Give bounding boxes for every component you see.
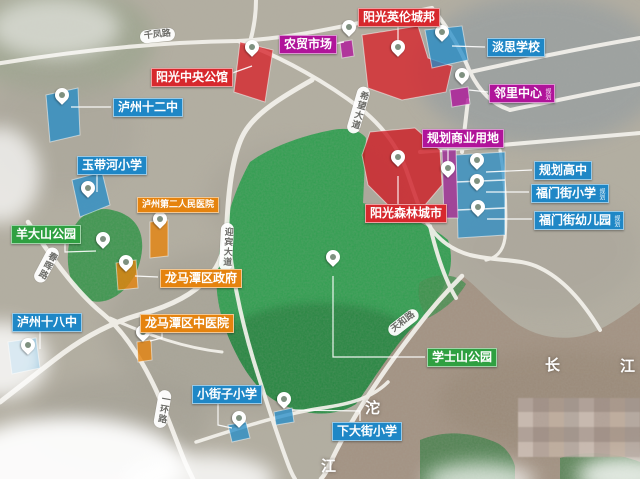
- label-text: 龙马潭区政府: [165, 271, 237, 286]
- road-label-tianhe-road: 天和路: [386, 307, 422, 339]
- pin-luzhou-second-peoples-hospital[interactable]: [153, 212, 167, 226]
- label-sunshine-england-estate[interactable]: 阳光英伦城邦: [358, 8, 440, 27]
- label-luzhou-second-peoples-hospital[interactable]: 泸州第二人民医院: [137, 197, 219, 213]
- pin-dansi-school[interactable]: [435, 25, 449, 39]
- label-fumenjie-primary-school[interactable]: 福门街小学规划: [531, 184, 609, 203]
- label-text: 玉带河小学: [82, 158, 142, 173]
- label-text: 下大街小学: [337, 424, 397, 439]
- label-yudaihe-primary-school[interactable]: 玉带河小学: [77, 156, 147, 175]
- label-planned-commercial-land[interactable]: 规划商业用地: [422, 129, 504, 148]
- label-planned-high-school[interactable]: 规划高中: [534, 161, 592, 180]
- label-text: 阳光森林城市: [370, 206, 442, 221]
- label-fumenjie-kindergarten[interactable]: 福门街幼儿园规划: [534, 211, 624, 230]
- label-text: 小街子小学: [197, 387, 257, 402]
- water-label-tuo-river-char-1: 沱: [365, 397, 380, 418]
- pin-fumenjie-kindergarten[interactable]: [471, 200, 485, 214]
- label-text: 龙马潭区中医院: [145, 316, 229, 331]
- label-yangdashan-park[interactable]: 羊大山公园: [11, 225, 81, 244]
- pin-farmers-market[interactable]: [342, 20, 356, 34]
- map-canvas: 阳光英伦城邦阳光中央公馆阳光森林城市农贸市场邻里中心规划规划商业用地淡思学校泸州…: [0, 0, 640, 479]
- pin-yudaihe-primary-school[interactable]: [81, 181, 95, 195]
- blurred-watermark: [518, 398, 640, 457]
- pin-planned-high-school[interactable]: [470, 153, 484, 167]
- label-text: 阳光英伦城邦: [363, 10, 435, 25]
- label-text: 泸州十八中: [17, 315, 77, 330]
- label-sunshine-central-mansion[interactable]: 阳光中央公馆: [151, 68, 233, 87]
- pin-sunshine-england-estate[interactable]: [391, 40, 405, 54]
- water-label-yangtze-char-1: 长: [545, 354, 560, 375]
- pin-longmatan-district-government[interactable]: [119, 255, 133, 269]
- pin-neighborhood-center[interactable]: [455, 68, 469, 82]
- label-sunshine-forest-city[interactable]: 阳光森林城市: [365, 204, 447, 223]
- label-farmers-market[interactable]: 农贸市场: [279, 35, 337, 54]
- label-xiaojiezi-primary-school[interactable]: 小街子小学: [192, 385, 262, 404]
- road-label-yihuan-road: 一环路: [153, 389, 172, 429]
- label-text: 福门街幼儿园: [539, 213, 611, 228]
- pin-sunshine-central-mansion[interactable]: [245, 40, 259, 54]
- road-label-chunhui-road: 春晖路: [32, 245, 61, 285]
- label-text: 学士山公园: [432, 350, 492, 365]
- label-text: 农贸市场: [284, 37, 332, 52]
- pin-luzhou-no12-middle-school[interactable]: [55, 88, 69, 102]
- pin-planned-commercial-land[interactable]: [441, 161, 455, 175]
- road-label-xiwang-avenue: 希望大道: [346, 85, 372, 135]
- label-luzhou-no12-middle-school[interactable]: 泸州十二中: [113, 98, 183, 117]
- pin-yangdashan-park[interactable]: [96, 232, 110, 246]
- label-text: 邻里中心: [494, 86, 542, 101]
- label-text: 阳光中央公馆: [156, 70, 228, 85]
- label-luzhou-no18-middle-school[interactable]: 泸州十八中: [12, 313, 82, 332]
- label-neighborhood-center[interactable]: 邻里中心规划: [489, 84, 555, 103]
- label-text: 羊大山公园: [16, 227, 76, 242]
- label-suffix: 规划: [544, 88, 550, 100]
- label-text: 规划商业用地: [427, 131, 499, 146]
- label-suffix: 规划: [598, 188, 604, 200]
- road-label-yingbin-avenue: 迎宾大道: [219, 223, 234, 272]
- pin-xueshishan-park[interactable]: [326, 250, 340, 264]
- pin-fumenjie-primary-school[interactable]: [470, 174, 484, 188]
- water-label-yangtze-char-2: 江: [620, 355, 635, 376]
- label-suffix: 规划: [613, 215, 619, 227]
- pin-xiaojiezi-primary-school[interactable]: [232, 411, 246, 425]
- label-longmatan-tcm-hospital[interactable]: 龙马潭区中医院: [140, 314, 234, 333]
- water-label-tuo-river-char-2: 江: [321, 455, 336, 476]
- label-dansi-school[interactable]: 淡思学校: [487, 38, 545, 57]
- road-label-qianfeng-road: 千凤路: [139, 27, 175, 44]
- label-text: 规划高中: [539, 163, 587, 178]
- pin-xiadajie-primary-school[interactable]: [277, 392, 291, 406]
- pin-luzhou-no18-middle-school[interactable]: [21, 338, 35, 352]
- label-text: 泸州第二人民医院: [142, 199, 214, 211]
- label-text: 福门街小学: [536, 186, 596, 201]
- pin-sunshine-forest-city[interactable]: [391, 150, 405, 164]
- label-xiadajie-primary-school[interactable]: 下大街小学: [332, 422, 402, 441]
- label-text: 泸州十二中: [118, 100, 178, 115]
- label-text: 淡思学校: [492, 40, 540, 55]
- label-xueshishan-park[interactable]: 学士山公园: [427, 348, 497, 367]
- label-longmatan-district-government[interactable]: 龙马潭区政府: [160, 269, 242, 288]
